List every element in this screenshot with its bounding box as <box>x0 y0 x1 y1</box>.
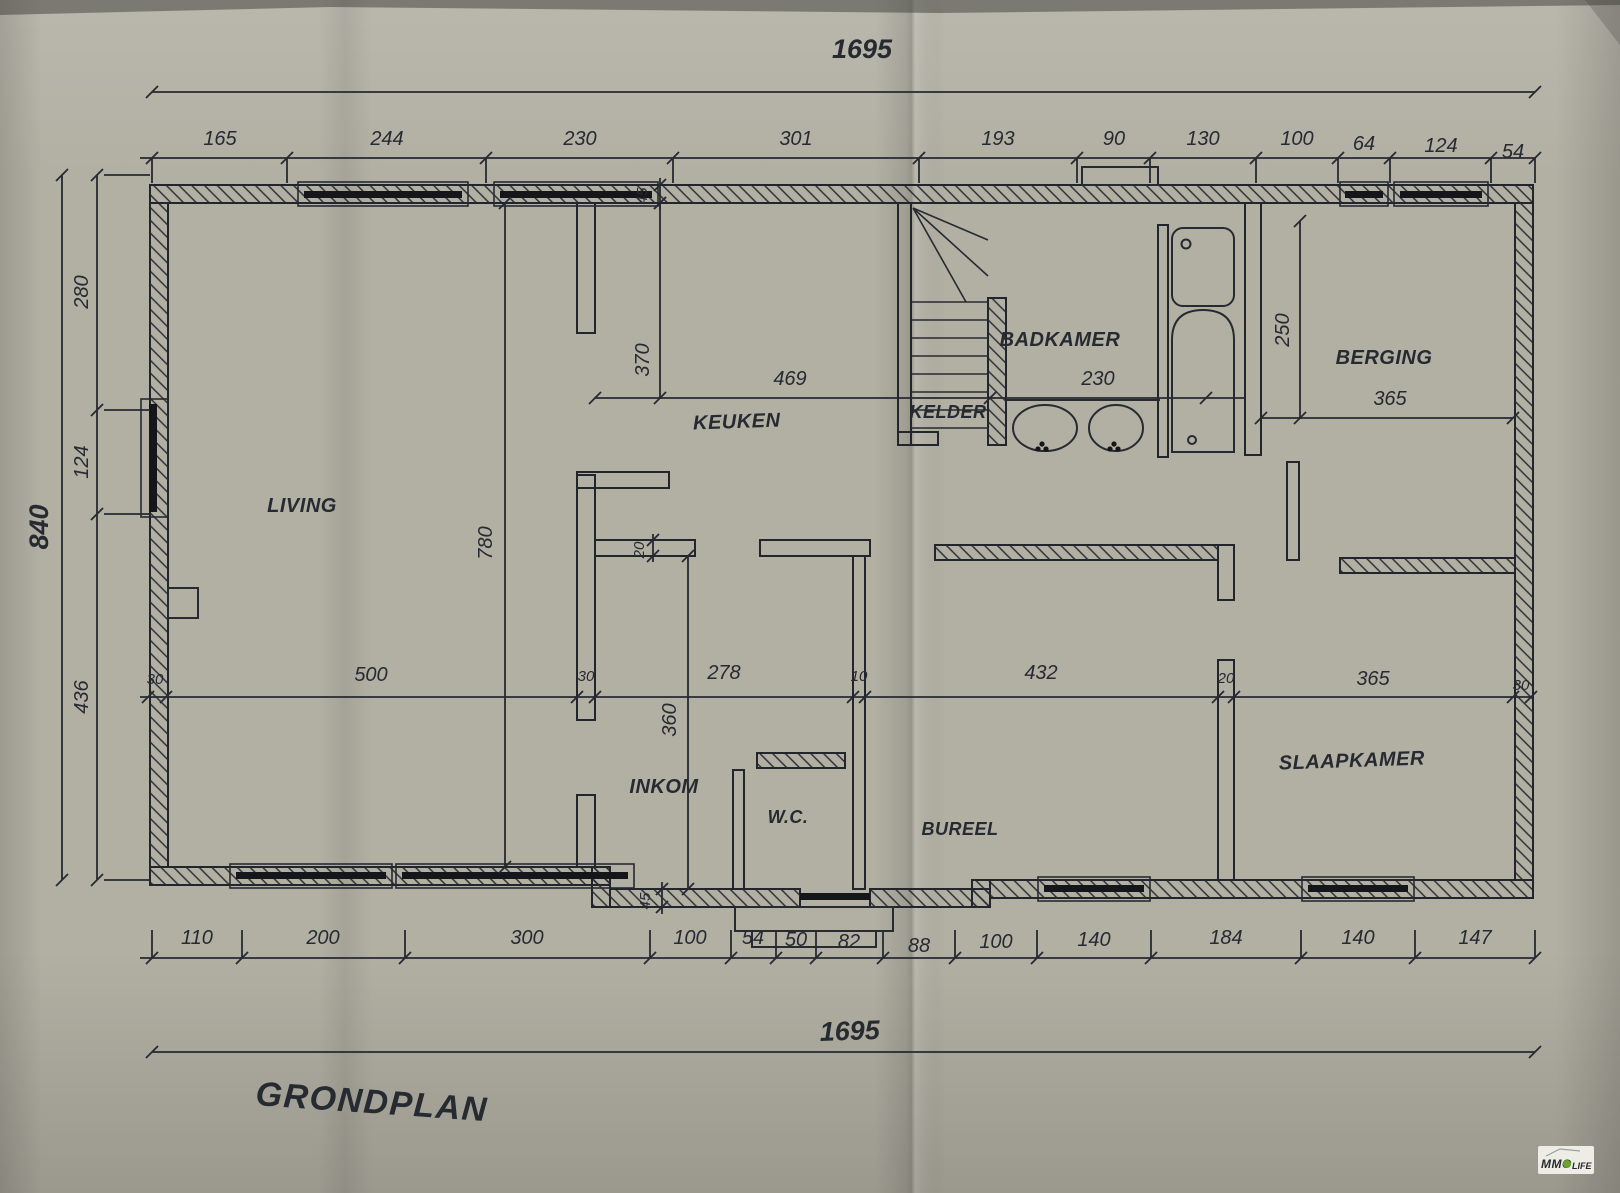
room-label-badkamer: BADKAMER <box>1000 329 1121 351</box>
dim-wall-top-label: 45 <box>634 187 651 204</box>
dim-wall-bottom-label: 45 <box>637 892 654 909</box>
room-label-keuken: KEUKEN <box>693 409 781 434</box>
dim-label: 300 <box>510 927 543 949</box>
dim-top-overall-label: 1695 <box>832 34 893 64</box>
room-label-berging: BERGING <box>1336 347 1433 369</box>
dim-label: 140 <box>1077 929 1110 951</box>
dim-label: 64 <box>1353 133 1375 155</box>
wall-right <box>1515 203 1533 880</box>
dim-label: 124 <box>1424 135 1457 157</box>
dim-bottom-overall-label: 1695 <box>819 1015 881 1047</box>
dim-label: 280 <box>71 275 93 309</box>
dim-label: 100 <box>1280 128 1313 150</box>
wall-berging-slaapkamer <box>1340 558 1515 573</box>
wall-left <box>150 203 168 867</box>
logo-suffix-text: LIFE <box>1572 1161 1592 1171</box>
dim-label: 50 <box>785 929 807 951</box>
room-label-living: LIVING <box>267 495 337 517</box>
dim-label: 184 <box>1209 927 1242 949</box>
wc-wall-top <box>757 753 845 768</box>
dim-label: 500 <box>354 664 387 686</box>
dim-left-overall-label: 840 <box>24 504 54 549</box>
wall-step-right <box>972 880 990 907</box>
dim-label: 124 <box>71 445 93 478</box>
dim-keuken-width-label: 469 <box>773 368 806 390</box>
dim-badkamer-width-label: 230 <box>1080 368 1114 390</box>
dim-inkom-depth-label: 360 <box>659 703 681 736</box>
dim-label: 54 <box>1502 141 1524 163</box>
floorplan-photo: 1695 165 244 230 301 193 90 130 100 64 1… <box>0 0 1620 1193</box>
dim-label: 140 <box>1341 927 1374 949</box>
floorplan-drawing: 1695 165 244 230 301 193 90 130 100 64 1… <box>0 0 1620 1193</box>
room-label-kelder: KELDER <box>909 402 986 422</box>
dim-label: 30 <box>147 671 164 688</box>
dim-berging-depth-label: 250 <box>1272 313 1294 347</box>
dim-label: 301 <box>779 128 812 150</box>
dim-label: 110 <box>181 927 213 949</box>
dim-label: 165 <box>203 128 237 150</box>
dim-berging-width-label: 365 <box>1373 388 1407 410</box>
dim-label: 90 <box>1103 128 1125 150</box>
room-label-wc: W.C. <box>768 807 809 827</box>
dim-label: 100 <box>673 927 706 949</box>
dim-label: 193 <box>981 128 1014 150</box>
room-label-inkom: INKOM <box>629 776 699 798</box>
front-door-threshold <box>800 893 870 900</box>
dim-label: 10 <box>851 668 868 685</box>
wall-badkamer-bureel <box>935 545 1218 560</box>
immo-life-logo: MMO LIFE <box>1538 1146 1594 1174</box>
room-label-bureel: BUREEL <box>921 819 998 839</box>
dim-wall-mid-label: 20 <box>631 541 648 559</box>
paper-fold-shadow <box>875 0 945 1193</box>
dim-keuken-depth-label: 370 <box>632 343 654 376</box>
dim-label: 147 <box>1458 927 1492 949</box>
logo-dot-icon <box>1563 1160 1571 1168</box>
dim-label: 230 <box>562 128 596 150</box>
dim-label: 278 <box>706 662 740 684</box>
dim-label: 30 <box>1513 677 1530 694</box>
dim-label: 88 <box>908 935 930 957</box>
dim-label: 130 <box>1186 128 1219 150</box>
dim-label: 244 <box>369 128 403 150</box>
paper-background <box>0 0 1620 1193</box>
dim-label: 82 <box>838 931 860 953</box>
dim-label: 432 <box>1024 662 1057 684</box>
dim-label: 436 <box>71 679 93 713</box>
dim-label: 100 <box>979 931 1012 953</box>
dim-label: 30 <box>578 668 595 685</box>
dim-label: 200 <box>305 927 339 949</box>
dim-label: 20 <box>1217 670 1235 687</box>
dim-label: 365 <box>1356 668 1390 690</box>
dim-label: 54 <box>742 927 764 949</box>
stair-wall-right <box>988 298 1006 445</box>
dim-living-depth-label: 780 <box>475 526 497 559</box>
